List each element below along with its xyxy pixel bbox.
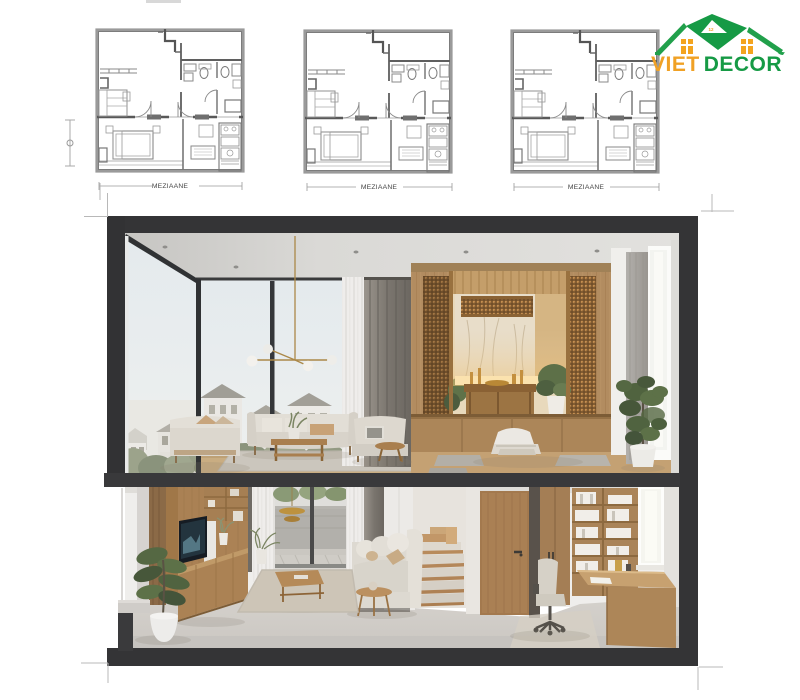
svg-text:MEZIAANE: MEZIAANE (361, 184, 398, 191)
svg-text:VIETDECOR: VIETDECOR (651, 53, 782, 76)
svg-text:MEZIAANE: MEZIAANE (152, 183, 189, 190)
svg-text:MEZIAANE: MEZIAANE (568, 184, 605, 191)
svg-text:12: 12 (708, 27, 714, 32)
